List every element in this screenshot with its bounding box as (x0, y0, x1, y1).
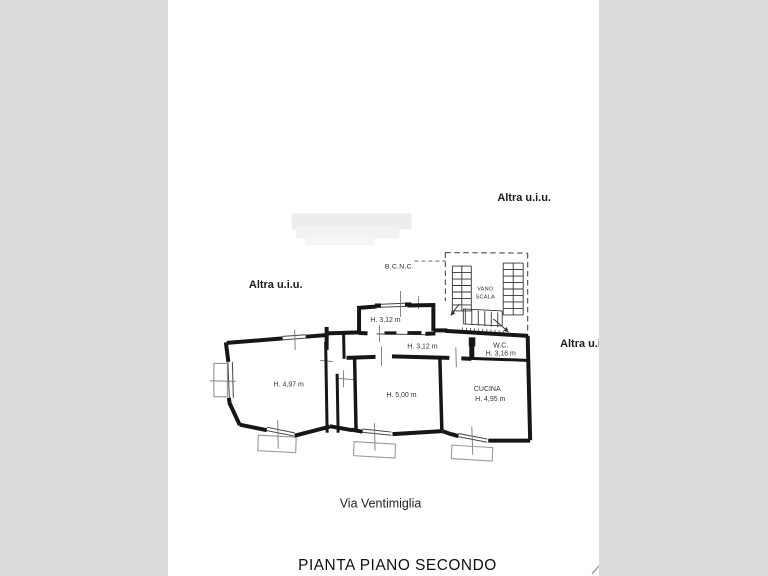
image-viewer-background: { "viewer": { "background_color": "#dcdc… (0, 0, 768, 576)
wall-blocks (375, 302, 475, 346)
left-room-height-label: H. 4,97 m (274, 381, 304, 388)
floor-plan-drawing: Altra u.i.u. Altra u.i.u. Altra u.i.u. B… (168, 0, 599, 576)
street-label: Via Ventimiglia (340, 496, 422, 510)
corner-mark (592, 566, 599, 574)
plan-title: PIANTA PIANO SECONDO (298, 557, 497, 574)
window-frames (214, 363, 227, 396)
top-room-height-label: H. 3,12 m (370, 317, 400, 324)
bcnc-label: B.C.N.C. (385, 264, 414, 271)
floor-plan-sheet: Altra u.i.u. Altra u.i.u. Altra u.i.u. B… (168, 0, 599, 576)
adjacent-unit-label-right: Altra u.i.u. (560, 338, 599, 350)
stair-direction-arrows (450, 304, 508, 332)
stairwell-label-line1: VANO (477, 286, 494, 292)
stairwell-label-line2: SCALA (476, 294, 495, 300)
stairwell-dashed-boundary (445, 253, 527, 334)
kitchen-height-label: H. 4,95 m (475, 396, 505, 403)
adjacent-unit-label-left: Altra u.i.u. (249, 279, 303, 291)
middle-room-height-label: H. 5,00 m (386, 392, 416, 399)
wc-height-label: H. 3,16 m (486, 350, 516, 357)
wc-name-label: W.C. (493, 342, 508, 349)
hallway-height-label: H. 3,12 m (407, 343, 437, 350)
scan-smudge (292, 213, 412, 245)
adjacent-unit-label-top-right: Altra u.i.u. (497, 192, 551, 204)
bcnc-boundary-dash (414, 261, 445, 309)
kitchen-name-label: CUCINA (474, 386, 501, 393)
